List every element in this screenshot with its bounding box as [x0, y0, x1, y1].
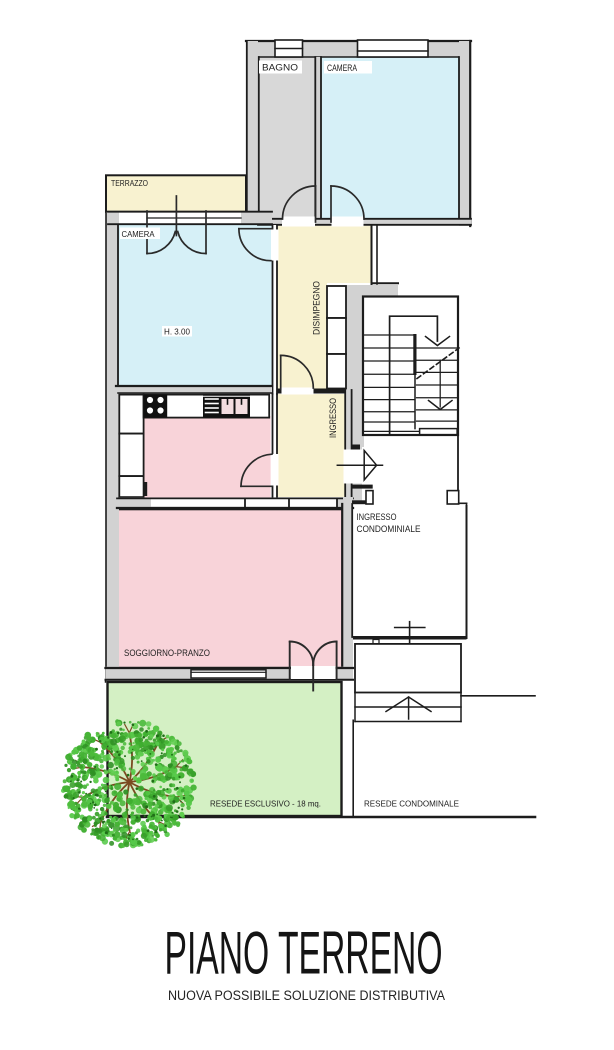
svg-text:INGRESSO: INGRESSO	[328, 398, 338, 438]
svg-text:CAMERA: CAMERA	[327, 63, 357, 73]
svg-text:CAMERA: CAMERA	[122, 229, 155, 239]
svg-text:PIANO TERRENO: PIANO TERRENO	[165, 920, 443, 987]
svg-text:INGRESSO: INGRESSO	[357, 512, 397, 522]
svg-text:TERRAZZO: TERRAZZO	[111, 178, 148, 188]
svg-text:RESEDE ESCLUSIVO - 18 mq.: RESEDE ESCLUSIVO - 18 mq.	[210, 799, 321, 809]
svg-text:NUOVA POSSIBILE SOLUZIONE DIST: NUOVA POSSIBILE SOLUZIONE DISTRIBUTIVA	[168, 988, 445, 1003]
svg-text:DISIMPEGNO: DISIMPEGNO	[312, 281, 322, 335]
svg-text:CONDOMINIALE: CONDOMINIALE	[357, 524, 421, 534]
svg-text:RESEDE CONDOMINALE: RESEDE CONDOMINALE	[364, 799, 459, 809]
svg-text:H. 3.00: H. 3.00	[164, 328, 191, 337]
svg-text:BAGNO: BAGNO	[262, 63, 298, 73]
svg-text:SOGGIORNO-PRANZO: SOGGIORNO-PRANZO	[124, 648, 210, 658]
